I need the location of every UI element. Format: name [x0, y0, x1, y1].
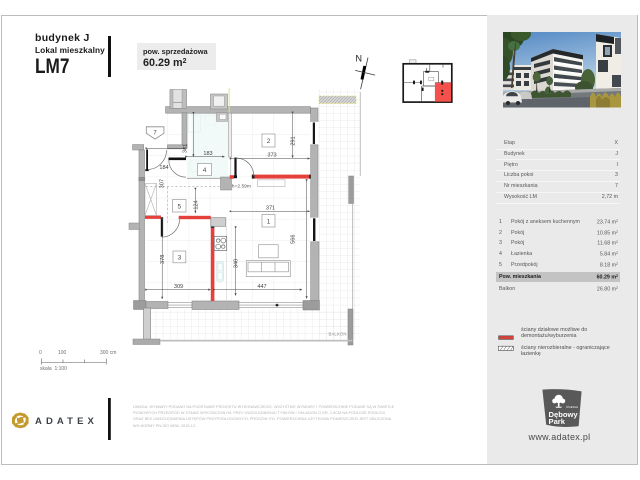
svg-text:378: 378	[160, 255, 166, 264]
svg-text:183: 183	[203, 151, 212, 157]
svg-text:373: 373	[267, 153, 276, 159]
svg-text:340: 340	[234, 259, 240, 268]
svg-text:307: 307	[160, 179, 166, 188]
svg-text:124: 124	[194, 200, 200, 209]
svg-text:5: 5	[177, 203, 181, 210]
svg-text:Park: Park	[549, 417, 566, 426]
svg-text:184: 184	[159, 165, 168, 171]
svg-text:N: N	[356, 54, 363, 64]
svg-text:291: 291	[291, 136, 297, 145]
svg-text:341: 341	[182, 144, 188, 153]
svg-text:2: 2	[267, 138, 271, 145]
svg-text:BALKON: BALKON	[329, 331, 347, 336]
svg-text:3: 3	[178, 255, 182, 262]
svg-text:OSIEDLE: OSIEDLE	[566, 406, 578, 409]
svg-text:371: 371	[266, 205, 275, 211]
svg-text:447: 447	[257, 284, 266, 290]
svg-text:4: 4	[203, 167, 207, 174]
svg-text:309: 309	[174, 284, 183, 290]
svg-text:566: 566	[291, 235, 297, 244]
svg-text:1: 1	[267, 218, 271, 225]
svg-text:ADATEX: ADATEX	[35, 416, 98, 427]
svg-text:h=2.59m: h=2.59m	[232, 184, 251, 190]
